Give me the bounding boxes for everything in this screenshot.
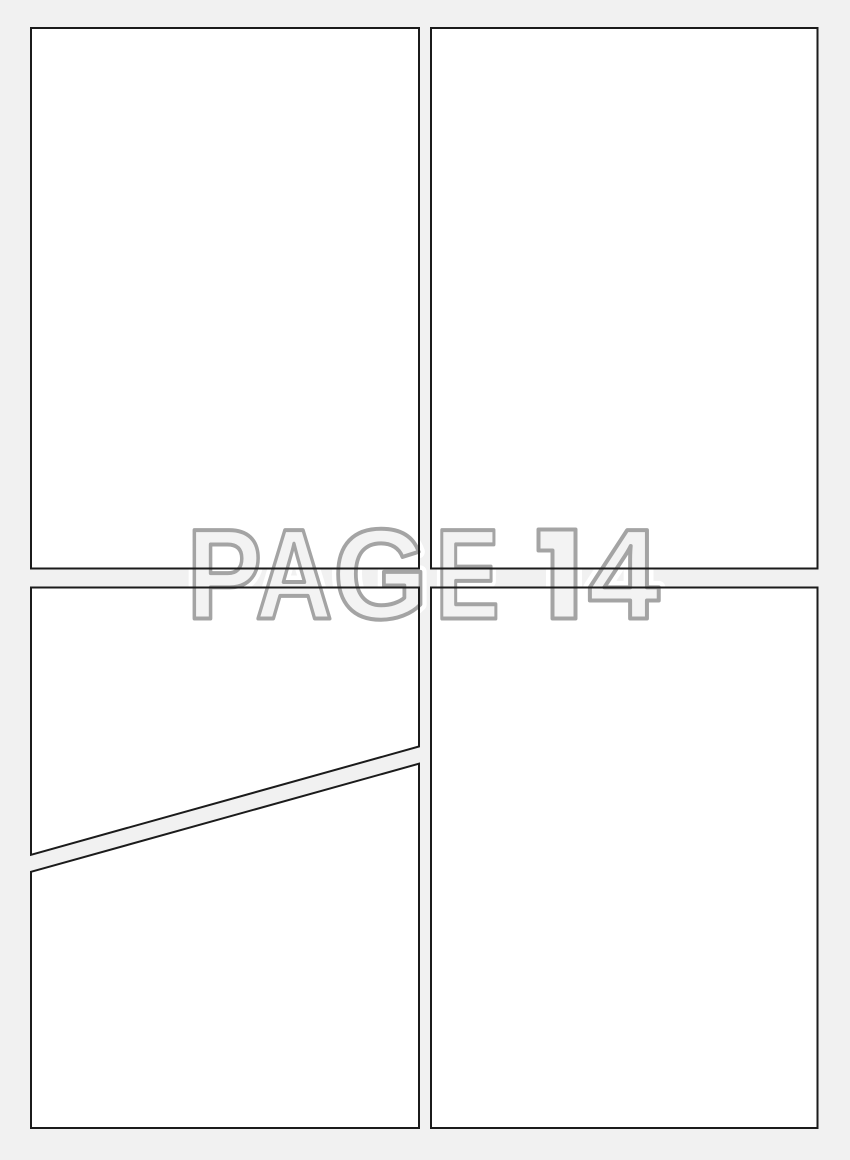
svg-text:E: E — [435, 504, 499, 647]
svg-text:4: 4 — [588, 504, 660, 647]
svg-text:P: P — [187, 504, 262, 647]
svg-text:A: A — [255, 504, 332, 647]
svg-text:G: G — [333, 504, 428, 647]
